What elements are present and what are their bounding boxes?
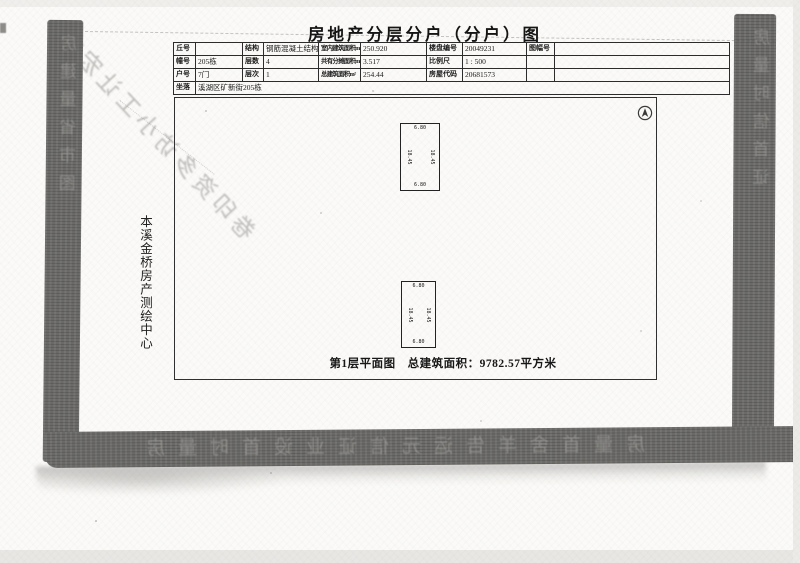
field-label: 比例尺	[427, 56, 463, 69]
field-value	[196, 43, 243, 56]
field-value: 3.517	[361, 56, 427, 69]
field-label: 层次	[243, 69, 264, 82]
dimension-label: 6.80	[402, 340, 435, 345]
field-label: 坐落	[174, 82, 196, 95]
unit-outline-2: 6.80 18.45 18.45 6.80	[401, 281, 436, 348]
property-info-table: 丘号 结构 钢筋混凝土结构 室内建筑面积m² 250.920 楼盘编号 2004…	[173, 42, 730, 95]
field-label: 楼盘编号	[427, 43, 463, 56]
scan-dark-band-bottom: 房量时首设业证信元运告羊舍首量房	[45, 426, 797, 468]
scanned-document-page: 房建量省市图 房量时信首证 房量时首设业证信元运告羊舍首量房 市宏让工小访多资印…	[0, 0, 800, 563]
ghost-text: 房量时信首证	[733, 28, 776, 196]
field-value: 1	[264, 69, 319, 82]
field-value	[555, 43, 730, 56]
field-value: 溪湖区矿新街205栋	[196, 82, 730, 95]
field-value: 20049231	[463, 43, 527, 56]
floor-plan-frame: 6.80 18.45 18.45 6.80 6.80 18.45 18.45 6…	[174, 97, 657, 380]
field-value: 钢筋混凝土结构	[264, 43, 319, 56]
scanner-margin	[0, 550, 800, 563]
field-label: 共有分摊面积m²	[319, 56, 361, 69]
scanner-margin	[793, 0, 800, 563]
table-row: 户号 7门 层次 1 总建筑面积m² 254.44 房屋代码 20681573	[174, 69, 730, 82]
dimension-label: 6.80	[401, 126, 439, 131]
field-value: 7门	[196, 69, 243, 82]
field-label: 总建筑面积m²	[319, 69, 361, 82]
ghost-text: 房量时首设业证信元运告羊舍首量房	[45, 426, 797, 468]
table-row-address: 坐落 溪湖区矿新街205栋	[174, 82, 730, 95]
unit-outline-1: 6.80 18.45 18.45 6.80	[400, 123, 440, 191]
dimension-label: 6.80	[401, 183, 439, 188]
field-value	[555, 56, 730, 69]
scan-dark-band-left: 房建量省市图	[43, 20, 84, 462]
field-label: 房屋代码	[427, 69, 463, 82]
field-value: 254.44	[361, 69, 427, 82]
field-label: 丘号	[174, 43, 196, 56]
dimension-label: 6.80	[402, 284, 435, 289]
field-label: 户号	[174, 69, 196, 82]
dimension-label: 18.45	[407, 307, 412, 322]
table-row: 丘号 结构 钢筋混凝土结构 室内建筑面积m² 250.920 楼盘编号 2004…	[174, 43, 730, 56]
field-value: 250.920	[361, 43, 427, 56]
surveying-agency-label: 本溪金桥房产测绘中心	[136, 215, 155, 365]
scanner-margin	[0, 0, 800, 7]
scan-dark-band-right: 房量时信首证	[732, 14, 776, 460]
field-value: 4	[264, 56, 319, 69]
north-arrow-icon	[637, 105, 653, 121]
scan-edge-mark	[0, 23, 6, 33]
dimension-label: 18.45	[429, 149, 434, 164]
field-label: 层数	[243, 56, 264, 69]
field-value: 205栋	[196, 56, 243, 69]
field-label: 幢号	[174, 56, 196, 69]
table-row: 幢号 205栋 层数 4 共有分摊面积m² 3.517 比例尺 1 : 500	[174, 56, 730, 69]
dimension-label: 18.45	[425, 307, 430, 322]
field-label	[527, 56, 555, 69]
field-label: 图幅号	[527, 43, 555, 56]
field-value: 1 : 500	[463, 56, 527, 69]
field-value	[555, 69, 730, 82]
plan-caption: 第1层平面图 总建筑面积：9782.57平方米	[175, 355, 656, 371]
field-label: 结构	[243, 43, 264, 56]
scan-smudge	[40, 468, 290, 496]
field-value: 20681573	[463, 69, 527, 82]
dimension-label: 18.45	[406, 149, 411, 164]
field-label: 室内建筑面积m²	[319, 43, 361, 56]
scan-specks	[0, 0, 2, 2]
field-label	[527, 69, 555, 82]
